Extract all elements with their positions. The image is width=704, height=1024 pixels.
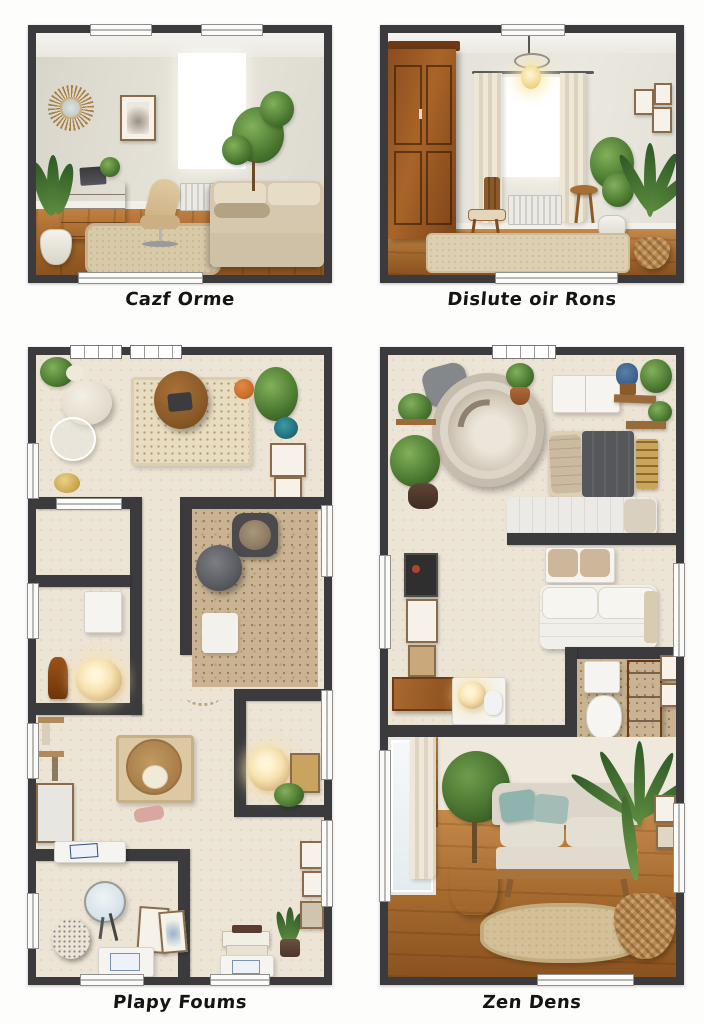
area-rug bbox=[426, 233, 630, 273]
wall bbox=[234, 689, 324, 701]
wardrobe-room-scene bbox=[388, 33, 676, 275]
sofa-base-cushionline bbox=[496, 847, 638, 871]
wall-frame bbox=[660, 655, 676, 681]
wardrobe-panel bbox=[394, 65, 422, 145]
wall bbox=[36, 703, 142, 715]
wall-frame bbox=[660, 683, 676, 707]
living-office-scene bbox=[36, 33, 324, 275]
curtain-right bbox=[560, 73, 586, 223]
sofa-cushion bbox=[268, 183, 320, 205]
window-panes bbox=[505, 82, 557, 172]
wall-frame bbox=[406, 599, 438, 643]
wall-shelf bbox=[396, 419, 436, 425]
gallery-frame bbox=[634, 89, 654, 115]
gold-books bbox=[636, 439, 658, 489]
window-symbol bbox=[27, 723, 39, 779]
wall bbox=[388, 725, 577, 737]
window-symbol bbox=[56, 498, 122, 510]
bed-pillow bbox=[624, 499, 656, 533]
small-plant bbox=[506, 363, 534, 389]
hanging-utensil bbox=[52, 757, 58, 781]
wall bbox=[180, 497, 324, 509]
bench-cushion bbox=[548, 549, 578, 577]
wood-cabinet bbox=[392, 677, 458, 711]
mirror-glass bbox=[60, 97, 82, 119]
leaning-frame bbox=[158, 910, 188, 954]
caption-render-2: Dislute oir Rons bbox=[379, 289, 685, 310]
wall-frame bbox=[36, 783, 74, 843]
caption-floorplan-1: Plapy Foums bbox=[27, 992, 333, 1013]
wall bbox=[565, 647, 577, 737]
wardrobe-handle bbox=[419, 109, 422, 119]
laptop-sketch bbox=[70, 843, 99, 859]
dresser-divider bbox=[585, 376, 586, 412]
pendant-cord bbox=[528, 33, 530, 55]
round-tray bbox=[142, 765, 168, 789]
teal-bowl bbox=[274, 417, 298, 439]
window-symbol bbox=[201, 24, 263, 36]
shelf-plant bbox=[648, 401, 672, 423]
shell-garland bbox=[186, 689, 220, 706]
gold-teapot bbox=[54, 473, 80, 493]
window-symbol bbox=[27, 583, 39, 639]
stone-planter bbox=[450, 859, 498, 915]
window-symbol bbox=[537, 974, 634, 986]
bouquet-flowers bbox=[66, 365, 84, 381]
floorplan-2-scene bbox=[388, 355, 676, 977]
sofa-wood-frame bbox=[496, 869, 638, 879]
wall-shelf bbox=[38, 751, 64, 757]
window-symbol bbox=[210, 974, 270, 986]
dark-round-table bbox=[196, 545, 242, 591]
white-cabinet bbox=[84, 591, 122, 633]
small-plant bbox=[274, 783, 304, 807]
curtain bbox=[410, 737, 436, 879]
laptop-sketch bbox=[110, 953, 140, 971]
panel-interior-render-1 bbox=[28, 25, 332, 283]
wall bbox=[234, 701, 246, 805]
floorplan-1-scene bbox=[36, 355, 324, 977]
window-symbol bbox=[78, 272, 203, 284]
wall-frame bbox=[270, 443, 306, 477]
window-symbol bbox=[495, 272, 618, 284]
skylight-symbol bbox=[492, 345, 556, 359]
skylight-symbol bbox=[70, 345, 122, 359]
round-mirror bbox=[84, 881, 126, 923]
wood-shelf bbox=[626, 421, 666, 429]
corner-plant bbox=[254, 367, 298, 421]
sofa-cushion bbox=[214, 183, 266, 205]
white-dresser bbox=[552, 375, 620, 413]
tall-plant-foliage bbox=[222, 135, 252, 165]
teal-pillow bbox=[498, 789, 538, 824]
window-symbol bbox=[379, 555, 391, 649]
panel-floorplan-1 bbox=[28, 347, 332, 985]
panel-interior-render-2 bbox=[380, 25, 684, 283]
stool-top bbox=[570, 185, 598, 195]
caption-render-1: Cazf Orme bbox=[27, 289, 333, 310]
frame-art-dot bbox=[412, 565, 420, 573]
glowing-lamp bbox=[76, 659, 122, 701]
textured-sphere bbox=[52, 919, 90, 959]
gallery-frame bbox=[654, 83, 672, 105]
cistern bbox=[584, 661, 620, 693]
panel-floorplan-2 bbox=[380, 347, 684, 985]
small-white-rug bbox=[202, 613, 238, 653]
window-symbol bbox=[27, 443, 39, 499]
tall-plant-trunk bbox=[252, 161, 255, 191]
topiary-trunk bbox=[472, 821, 477, 863]
window-symbol bbox=[501, 24, 565, 36]
dark-tablet bbox=[232, 925, 262, 933]
moodboard-grid: Cazf Orme bbox=[0, 0, 704, 1024]
table-chair bbox=[167, 392, 193, 412]
sunburst-mirror bbox=[48, 85, 94, 131]
skylight-symbol bbox=[130, 345, 182, 359]
sofa-front bbox=[210, 233, 324, 267]
bed-pillow bbox=[549, 434, 584, 494]
wall-frame bbox=[408, 645, 436, 677]
window-symbol bbox=[27, 893, 39, 949]
shelf-plant bbox=[640, 359, 672, 393]
laptop-sketch bbox=[232, 960, 260, 974]
pendant-globe bbox=[521, 65, 541, 89]
plant-pot bbox=[280, 939, 300, 957]
wall bbox=[180, 509, 192, 655]
orange-bowl bbox=[234, 379, 254, 399]
frame-art bbox=[165, 916, 182, 947]
window-symbol bbox=[90, 24, 152, 36]
window-symbol bbox=[673, 803, 685, 893]
pet-bed-cushion bbox=[239, 520, 271, 550]
teal-pillow bbox=[533, 793, 570, 824]
white-cloth bbox=[484, 691, 502, 715]
window bbox=[500, 77, 562, 177]
window-symbol bbox=[321, 820, 333, 907]
tall-plant-foliage bbox=[260, 91, 294, 127]
wardrobe-panel bbox=[426, 151, 452, 225]
window-symbol bbox=[321, 690, 333, 780]
art-sketch bbox=[127, 102, 149, 134]
sofa-bolster bbox=[214, 203, 270, 218]
dark-plant-pot bbox=[408, 483, 438, 509]
wall bbox=[130, 497, 142, 715]
decor-pot bbox=[620, 383, 636, 395]
wardrobe-panel bbox=[426, 65, 452, 145]
window-symbol bbox=[80, 974, 144, 986]
open-window-symbol bbox=[673, 563, 685, 657]
radiator bbox=[508, 195, 562, 225]
pet-bed bbox=[232, 513, 278, 557]
desk-plant bbox=[100, 157, 120, 177]
amber-bottle bbox=[48, 657, 68, 699]
hanging-towel bbox=[42, 723, 50, 745]
wall bbox=[507, 533, 676, 545]
caption-floorplan-2: Zen Dens bbox=[379, 992, 685, 1013]
glowing-lamp bbox=[458, 681, 486, 709]
office-chair-base bbox=[142, 241, 178, 247]
sofa bbox=[210, 181, 324, 267]
bed-throw bbox=[644, 591, 658, 643]
wall bbox=[36, 575, 130, 587]
dark-duvet bbox=[582, 431, 634, 497]
big-plant bbox=[390, 435, 440, 487]
gallery-frame bbox=[652, 107, 672, 133]
dark-wall-frame bbox=[404, 553, 438, 597]
wood-shelf bbox=[614, 394, 656, 403]
window-symbol bbox=[321, 505, 333, 577]
wall-art-frame bbox=[120, 95, 156, 141]
wardrobe-panel bbox=[394, 151, 422, 225]
pink-pouch bbox=[133, 805, 165, 824]
glass-side-table bbox=[50, 417, 96, 461]
toilet bbox=[586, 695, 622, 739]
area-rug bbox=[85, 223, 221, 275]
chair-back bbox=[484, 177, 500, 213]
bench-cushion bbox=[580, 549, 610, 577]
bed-pillow bbox=[542, 587, 598, 619]
glass-door-symbol bbox=[379, 750, 391, 902]
wardrobe bbox=[388, 49, 456, 239]
wall bbox=[234, 805, 324, 817]
